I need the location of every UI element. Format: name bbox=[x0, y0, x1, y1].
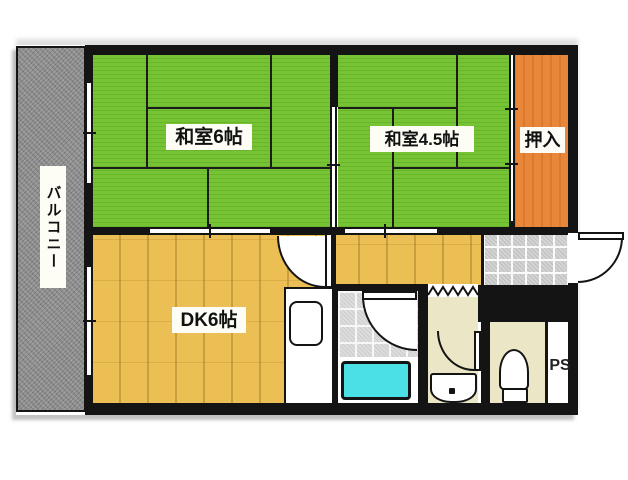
hallway-floor bbox=[332, 235, 483, 285]
tatami-seam bbox=[338, 107, 458, 109]
tatami-seam bbox=[207, 167, 209, 227]
floorplan: 和室6帖 和室4.5帖 押入 DK6帖 バルコニー PS bbox=[0, 0, 628, 480]
tatami-seam bbox=[270, 53, 272, 169]
label-closet: 押入 bbox=[520, 127, 565, 153]
door-frame-line bbox=[333, 233, 336, 290]
bathtub bbox=[341, 361, 411, 400]
tatami-seam bbox=[392, 107, 394, 227]
fusuma-opening-room45-south bbox=[345, 227, 437, 235]
label-pipe-space: PS bbox=[547, 357, 573, 375]
dk-door-leaf bbox=[325, 233, 333, 288]
wall-right-upper bbox=[568, 45, 578, 233]
wall-bath-north bbox=[332, 284, 428, 291]
kitchen-sink bbox=[289, 301, 323, 346]
opening-tick bbox=[327, 164, 340, 166]
tatami-seam bbox=[146, 107, 272, 109]
opening-tick bbox=[384, 224, 386, 238]
wall-mid-segment bbox=[437, 227, 568, 235]
label-dining-kitchen: DK6帖 bbox=[172, 307, 246, 333]
wall-washroom-toilet bbox=[481, 322, 490, 403]
entrance-door-arc bbox=[578, 237, 623, 283]
genkan-entry-floor bbox=[483, 233, 568, 285]
wall-bath-washroom bbox=[418, 291, 428, 403]
opening-tick bbox=[209, 224, 211, 238]
wall-genkan-west bbox=[481, 233, 484, 285]
washroom-door-leaf bbox=[474, 331, 481, 371]
wall-bath-west bbox=[332, 288, 338, 403]
label-japanese-room-45: 和室4.5帖 bbox=[370, 126, 474, 152]
window-tick bbox=[83, 320, 96, 322]
opening-tick bbox=[505, 163, 518, 165]
toilet-tank bbox=[502, 388, 528, 403]
tatami-seam bbox=[392, 167, 509, 169]
wall-bottom bbox=[85, 403, 578, 415]
entrance-door-leaf bbox=[578, 232, 624, 240]
wall-tatami-divider bbox=[330, 53, 338, 107]
fusuma-divider-tatami bbox=[330, 107, 337, 227]
wall-mid-segment bbox=[93, 227, 150, 235]
toilet-bowl bbox=[499, 349, 529, 391]
label-japanese-room-6: 和室6帖 bbox=[166, 124, 252, 150]
opening-tick bbox=[511, 221, 513, 235]
window-tick bbox=[83, 132, 96, 134]
tatami-seam bbox=[146, 53, 148, 169]
wall-entry-south bbox=[478, 285, 578, 322]
bathroom-door-leaf bbox=[362, 291, 417, 300]
accordion-partition-zigzag bbox=[428, 284, 478, 297]
opening-tick bbox=[505, 108, 518, 110]
tatami-seam bbox=[93, 167, 330, 169]
fusuma-closet bbox=[509, 55, 515, 227]
washbasin-drain bbox=[449, 388, 455, 394]
label-balcony: バルコニー bbox=[40, 166, 66, 288]
